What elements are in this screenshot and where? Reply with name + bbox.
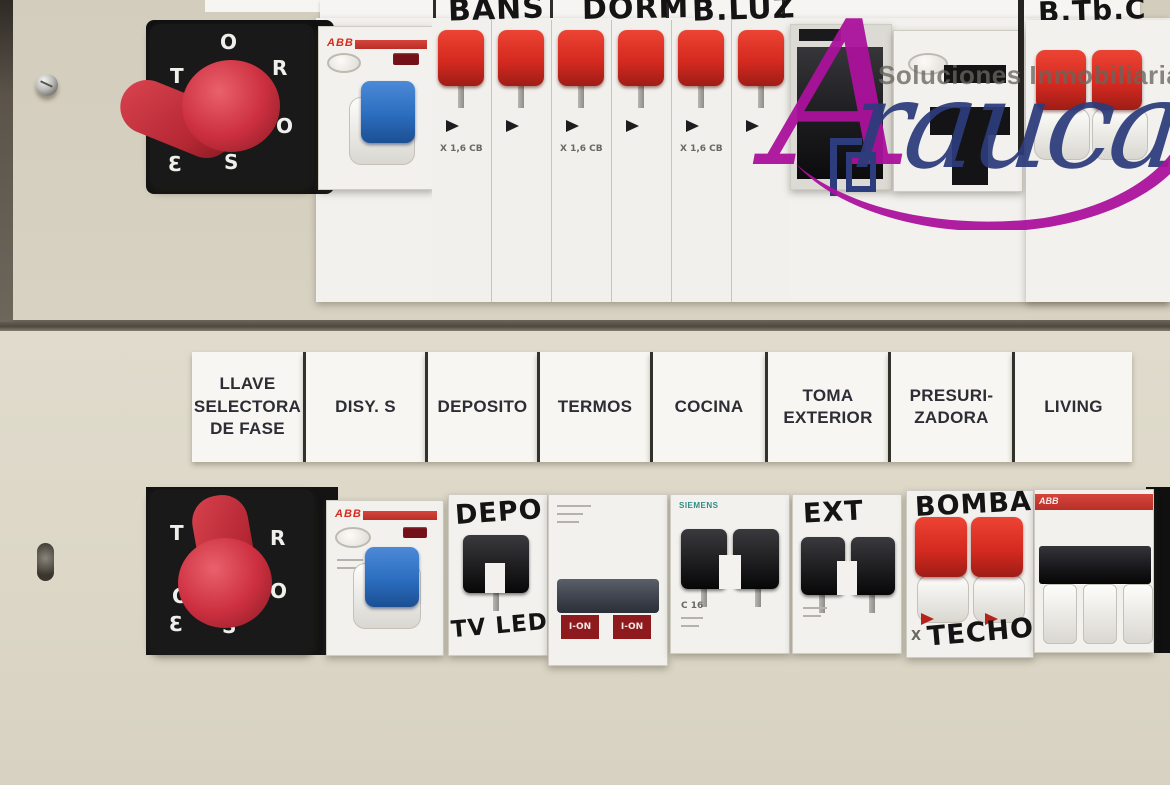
on-arrow-icon	[446, 120, 459, 132]
circuit-label-presurizadora: PRESURI- ZADORA	[888, 352, 1012, 462]
on-arrow-icon	[506, 120, 519, 132]
selector-letter: T	[170, 64, 184, 88]
module-divider	[731, 20, 732, 302]
pole-front	[1043, 584, 1077, 644]
selector-letter: O	[220, 30, 237, 54]
abb-red-stripe	[355, 40, 427, 49]
breaker-living: ABB	[1034, 489, 1154, 653]
rating-print: C 16	[681, 601, 703, 611]
abb-logo: ABB	[1039, 496, 1059, 506]
handle-bar-off	[557, 579, 659, 613]
selector-letter: R	[270, 526, 285, 550]
rating-print: X 1,6 CB	[560, 144, 603, 154]
pole-front	[1083, 584, 1117, 644]
wall-slot	[37, 543, 54, 581]
top-breaker-bank: X 1,6 CB X 1,6 CB X 1,6 CB	[432, 20, 790, 302]
breaker-cocina: SIEMENS C 16	[670, 494, 790, 654]
toggle-notch	[719, 555, 741, 589]
selector-letter: Ɛ	[169, 612, 183, 636]
handwritten-label: DEPO	[454, 494, 544, 531]
selector-letter: O	[270, 579, 287, 603]
on-arrow-icon	[566, 120, 579, 132]
top-label-divider	[550, 0, 553, 18]
red-toggle	[558, 30, 604, 86]
breaker-deposito: DEPO TV LED	[448, 494, 548, 656]
rcd-disy-s: ABB	[326, 500, 444, 656]
circuit-label-cocina: COCINA	[650, 352, 765, 462]
selector-letter: S	[224, 150, 238, 174]
top-rcd-breaker: ABB	[318, 26, 434, 190]
red-toggle	[498, 30, 544, 86]
selector-letter: Ɛ	[168, 152, 182, 176]
module-divider	[551, 20, 552, 302]
bottom-selector-knob	[178, 538, 272, 628]
selector-letter: R	[272, 56, 287, 80]
print-line	[681, 617, 703, 619]
breaker-bomba-techo: BOMBA X TECHO	[906, 490, 1034, 658]
toggle-stem	[493, 591, 499, 611]
handwritten-label: BAÑS	[447, 0, 545, 29]
ion-indicator: I-ON	[613, 615, 651, 639]
blue-toggle	[365, 547, 419, 607]
wide-black-handle	[1039, 546, 1151, 584]
circuit-label-deposito: DEPOSITO	[425, 352, 537, 462]
ion-indicator: I-ON	[561, 615, 599, 639]
print-line	[557, 513, 583, 515]
print-line	[803, 615, 821, 617]
pole-front	[1123, 584, 1153, 644]
x-mark: X	[911, 629, 921, 644]
red-toggle	[971, 517, 1023, 577]
selector-letter: T	[170, 521, 184, 545]
print-line	[557, 521, 579, 523]
red-toggle	[438, 30, 484, 86]
toggle-stem	[869, 595, 875, 613]
selector-letter: O	[276, 114, 293, 138]
module-divider	[671, 20, 672, 302]
print-line	[681, 625, 699, 627]
cabinet-left-edge	[0, 0, 13, 322]
top-selector-knob	[182, 60, 280, 152]
print-line	[557, 505, 591, 507]
circuit-label-toma-exterior: TOMA EXTERIOR	[765, 352, 888, 462]
circuit-label-disy-s: DISY. S	[303, 352, 425, 462]
abb-red-stripe: ABB	[1035, 494, 1153, 510]
abb-logo: ABB	[335, 508, 362, 520]
module-divider	[491, 20, 492, 302]
on-arrow-icon	[746, 120, 759, 132]
print-line	[803, 607, 827, 609]
breaker-termos: I-ON I-ON	[548, 494, 668, 666]
circuit-label-living: LIVING	[1012, 352, 1132, 462]
circuit-label-termos: TERMOS	[537, 352, 650, 462]
toggle-notch	[837, 561, 857, 595]
toggle-notch	[485, 563, 505, 593]
breaker-toma-exterior: EXT	[792, 494, 902, 654]
toggle-stem	[819, 595, 825, 613]
abb-logo: ABB	[327, 37, 354, 49]
rating-print: X 1,6 CB	[440, 144, 483, 154]
photo-electrical-panel: O R O S T Ɛ ABB	[0, 0, 1170, 785]
handwritten-label: EXT	[802, 495, 864, 529]
handwritten-label: TV LED	[450, 609, 549, 643]
on-arrow-icon	[686, 120, 699, 132]
handwritten-label: DORM	[582, 0, 690, 27]
blue-toggle	[361, 81, 415, 143]
screw-icon	[36, 74, 58, 96]
toggle-stem	[755, 589, 761, 607]
panel-divider-edge	[0, 320, 1170, 331]
top-label-strip-fragment	[205, 0, 320, 12]
watermark-swoosh-icon	[792, 138, 1170, 230]
thumb-turn	[335, 527, 371, 548]
on-arrow-icon	[626, 120, 639, 132]
test-button	[393, 53, 419, 65]
rating-print: X 1,6 CB	[680, 144, 723, 154]
red-toggle	[678, 30, 724, 86]
module-divider	[611, 20, 612, 302]
top-label-divider	[433, 0, 436, 18]
test-button	[403, 527, 427, 538]
red-toggle	[618, 30, 664, 86]
siemens-logo: SIEMENS	[679, 501, 719, 510]
black-toggle	[851, 537, 895, 595]
print-line	[337, 559, 363, 561]
thumb-turn	[327, 53, 361, 73]
circuit-label-llave-selectora: LLAVE SELECTORA DE FASE	[192, 352, 303, 462]
abb-red-stripe	[363, 511, 437, 520]
red-toggle	[915, 517, 967, 577]
